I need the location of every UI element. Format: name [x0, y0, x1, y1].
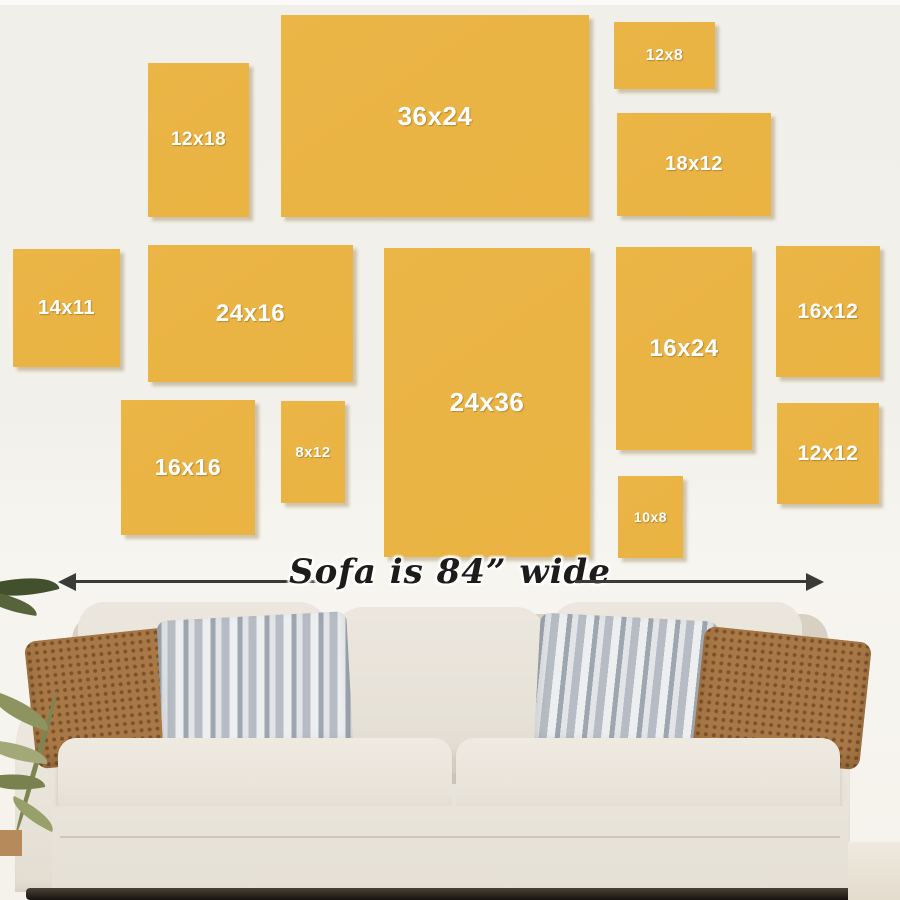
arrow-right-icon: [806, 573, 824, 591]
canvas-frame-16x24: 16x24: [616, 247, 752, 450]
canvas-frame-12x12: 12x12: [777, 403, 879, 504]
sofa-base-seam: [60, 836, 840, 838]
measure-line-right: [575, 580, 815, 583]
canvas-frame-8x12: 8x12: [281, 401, 345, 503]
canvas-frame-10x8: 10x8: [618, 476, 683, 558]
canvas-frame-12x8: 12x8: [614, 22, 715, 89]
canvas-frame-12x18: 12x18: [148, 63, 249, 217]
canvas-size-label: 16x16: [155, 454, 221, 481]
canvas-frame-36x24: 36x24: [281, 15, 589, 217]
top-strip: [0, 0, 900, 5]
canvas-size-label: 12x18: [171, 129, 226, 151]
canvas-size-label: 8x12: [295, 444, 330, 461]
canvas-size-label: 12x12: [798, 442, 859, 466]
canvas-size-label: 36x24: [398, 101, 473, 132]
pillow-gray-right: [534, 612, 719, 758]
floor-right: [848, 842, 900, 900]
canvas-frame-24x16: 24x16: [148, 245, 353, 382]
canvas-size-label: 24x36: [450, 387, 525, 418]
canvas-frame-24x36: 24x36: [384, 248, 590, 557]
canvas-size-label: 16x24: [649, 335, 718, 363]
sofa-base: [52, 806, 848, 894]
canvas-frame-18x12: 18x12: [617, 113, 771, 216]
wood-floor-sliver: [0, 830, 22, 856]
canvas-size-label: 16x12: [798, 300, 859, 324]
canvas-size-label: 12x8: [646, 47, 684, 65]
wall-art-size-guide: 12x1836x2412x818x1214x1124x1624x3616x241…: [0, 0, 900, 900]
canvas-size-label: 18x12: [665, 153, 723, 176]
sofa-floor-shadow: [26, 888, 874, 900]
canvas-size-label: 10x8: [634, 509, 667, 525]
sofa-width-note: Sofa is 84” wide: [250, 552, 650, 592]
canvas-frame-14x11: 14x11: [13, 249, 120, 367]
canvas-frame-16x12: 16x12: [776, 246, 880, 377]
canvas-size-label: 24x16: [216, 300, 285, 328]
canvas-frame-16x16: 16x16: [121, 400, 255, 535]
canvas-size-label: 14x11: [38, 297, 95, 320]
